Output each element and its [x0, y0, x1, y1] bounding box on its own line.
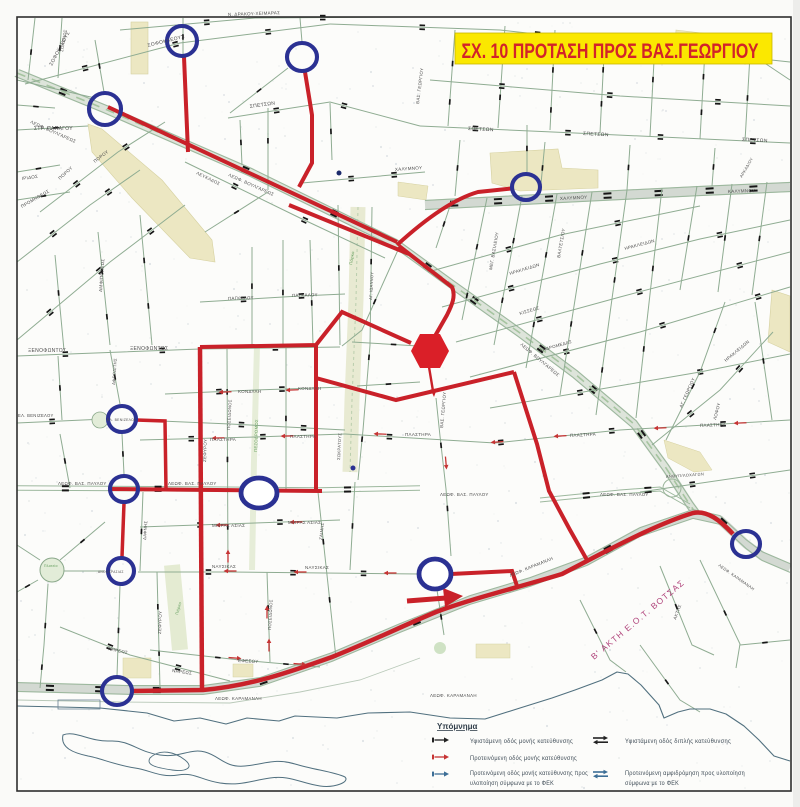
svg-text:Υφιστάμενη οδός μονής κατεύθυν: Υφιστάμενη οδός μονής κατεύθυνσης [470, 738, 573, 745]
svg-text:ΠΑΓΚΑΛΟΥ: ΠΑΓΚΑΛΟΥ [292, 292, 318, 298]
svg-text:ΝΑΥΣΙΚΑΣ: ΝΑΥΣΙΚΑΣ [305, 565, 329, 570]
svg-text:ΞΕΝΟΦΩΝΤΟΣ: ΞΕΝΟΦΩΝΤΟΣ [28, 348, 66, 354]
svg-text:ΠΛΑΣΤΗΡΑ: ΠΛΑΣΤΗΡΑ [700, 422, 726, 428]
svg-text:ΛΕΩΦ. ΒΑΣ. ΠΑΥΛΟΥ: ΛΕΩΦ. ΒΑΣ. ΠΑΥΛΟΥ [600, 492, 649, 497]
svg-text:Υπόμνημα: Υπόμνημα [437, 722, 477, 731]
svg-text:Προτεινόμενη οδός μονής κατεύθ: Προτεινόμενη οδός μονής κατεύθυνσης [470, 755, 577, 762]
svg-text:σύμφωνα με το ΦΕΚ: σύμφωνα με το ΦΕΚ [625, 780, 679, 787]
svg-text:ΝΑΥΣΙΚΑΣ: ΝΑΥΣΙΚΑΣ [212, 564, 236, 569]
svg-text:ΠΛΑΣΤΗΡΑ: ΠΛΑΣΤΗΡΑ [210, 437, 236, 442]
svg-text:ΣΧ. 10 ΠΡΟΤΑΣΗ ΠΡΟΣ ΒΑΣ.ΓΕΩΡΓΙ: ΣΧ. 10 ΠΡΟΤΑΣΗ ΠΡΟΣ ΒΑΣ.ΓΕΩΡΓΙΟΥ [462, 39, 759, 63]
svg-text:Προτεινόμενη οδός μονής κατεύθ: Προτεινόμενη οδός μονής κατεύθυνσης προς [470, 770, 588, 777]
svg-text:ΞΕΝΟΦΩΝΤΟΣ: ΞΕΝΟΦΩΝΤΟΣ [130, 346, 168, 352]
svg-text:ΛΕΩΦ. ΒΑΣ. ΠΑΥΛΟΥ: ΛΕΩΦ. ΒΑΣ. ΠΑΥΛΟΥ [168, 481, 217, 486]
svg-text:ΜΙΚΡΑΣ ΑΣΙΑΣ: ΜΙΚΡΑΣ ΑΣΙΑΣ [212, 523, 245, 528]
svg-text:ΛΕΩΦ. ΒΑΣ. ΠΑΥΛΟΥ: ΛΕΩΦ. ΒΑΣ. ΠΑΥΛΟΥ [58, 481, 107, 486]
svg-text:Υφιστάμενη οδός διπλής κατεύθυ: Υφιστάμενη οδός διπλής κατεύθυνσης [625, 738, 731, 745]
svg-text:ΛΕΩΦ. ΒΑΣ. ΠΑΥΛΟΥ: ΛΕΩΦ. ΒΑΣ. ΠΑΥΛΟΥ [440, 492, 489, 497]
svg-text:ΠΑΓΚΑΛΟΥ: ΠΑΓΚΑΛΟΥ [228, 295, 254, 301]
svg-text:ΖΕΦΥΡΟΥ: ΖΕΦΥΡΟΥ [157, 611, 163, 634]
svg-text:ΠΛΑΣΤΗΡΑ: ΠΛΑΣΤΗΡΑ [405, 432, 431, 437]
svg-text:ΜΙΚΡΑΣ ΑΣΙΑΣ: ΜΙΚΡΑΣ ΑΣΙΑΣ [288, 520, 321, 525]
svg-text:ΚΟΝΔΥΛΗ: ΚΟΝΔΥΛΗ [238, 389, 261, 394]
svg-text:ΚΟΝΔΥΛΗ: ΚΟΝΔΥΛΗ [298, 386, 321, 391]
svg-text:Πλατεία: Πλατεία [44, 564, 58, 568]
svg-text:υλοποίηση σύμφωνα με το ΦΕΚ: υλοποίηση σύμφωνα με το ΦΕΚ [470, 780, 554, 787]
svg-text:ΠΛΑΣΤΗΡΑ: ΠΛΑΣΤΗΡΑ [290, 434, 316, 439]
svg-text:ΛΕΩΦ. ΚΑΡΑΜΑΝΛΗ: ΛΕΩΦ. ΚΑΡΑΜΑΝΛΗ [215, 696, 262, 701]
svg-text:ΕΛ. ΒΕΝΙΖΕΛΟΣ: ΕΛ. ΒΕΝΙΖΕΛΟΣ [107, 418, 136, 422]
svg-text:ΖΕΦΥΡΟΥ: ΖΕΦΥΡΟΥ [202, 439, 208, 462]
svg-text:ΑΝΘΟΚΡΑΣΙΑΣ: ΑΝΘΟΚΡΑΣΙΑΣ [98, 570, 124, 574]
svg-text:ΕΛ. ΒΕΝΙΖΕΛΟΥ: ΕΛ. ΒΕΝΙΖΕΛΟΥ [18, 413, 54, 418]
svg-text:Προτεινόμενη αμφιδρόμηση προς: Προτεινόμενη αμφιδρόμηση προς υλοποίηση [625, 770, 745, 777]
svg-text:ΣΤΡ. ΠΑΠΑΓΟΥ: ΣΤΡ. ΠΑΠΑΓΟΥ [34, 126, 73, 132]
svg-text:ΛΕΩΦ. ΚΑΡΑΜΑΝΛΗ: ΛΕΩΦ. ΚΑΡΑΜΑΝΛΗ [430, 693, 477, 698]
svg-text:ΚΑΛΥΜΝΟΥ: ΚΑΛΥΜΝΟΥ [728, 188, 756, 194]
